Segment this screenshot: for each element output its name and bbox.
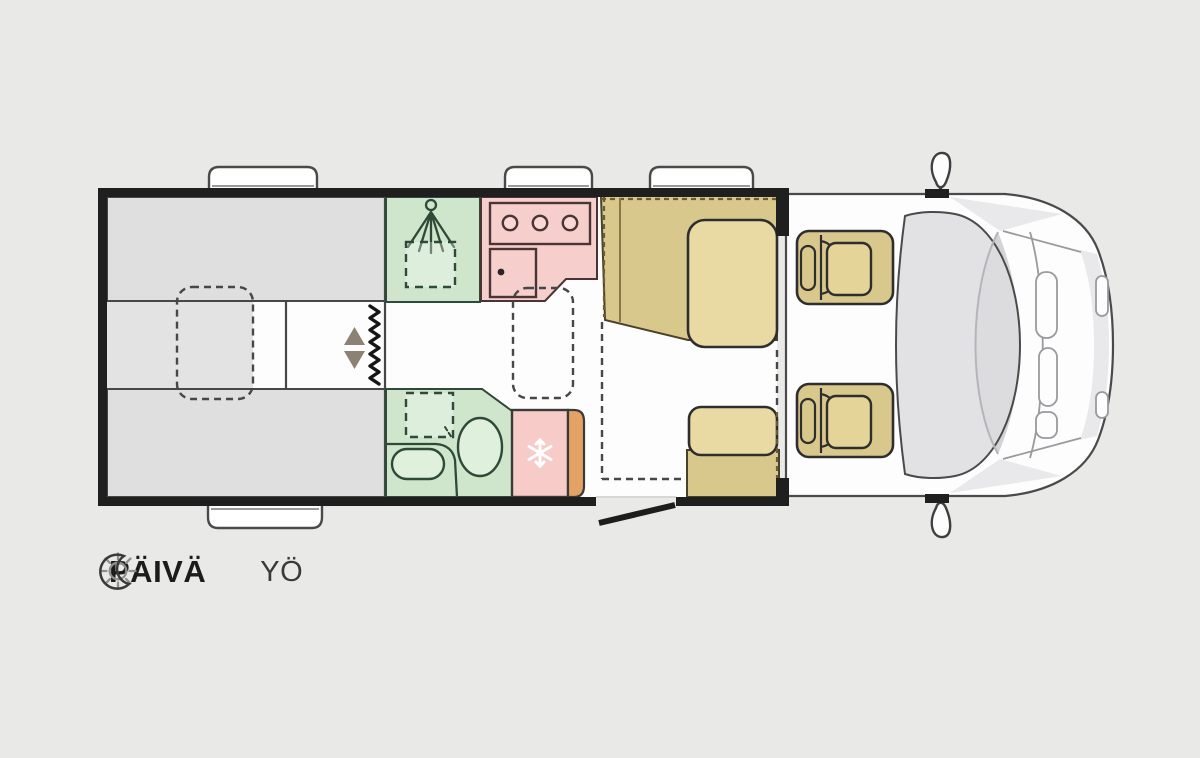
wall-left <box>98 188 107 506</box>
washroom <box>386 389 512 497</box>
grille-slots <box>1036 272 1057 438</box>
side-mirror-top <box>932 153 950 194</box>
dinette-bench <box>601 196 777 347</box>
wall-stub-bottom-right <box>776 478 789 506</box>
dinette-cushion <box>688 220 777 347</box>
b-pillar-top <box>925 189 949 198</box>
windshield <box>896 212 1020 478</box>
wall-bottom-right <box>676 497 789 506</box>
washroom-tray-dashed <box>406 393 453 437</box>
legend-night-label: YÖ <box>260 556 303 589</box>
wall-stub-top-right <box>776 188 789 236</box>
motorhome-floorplan: PÄIVÄ YÖ <box>0 0 1200 758</box>
floorplan-drawing <box>0 0 1200 758</box>
fridge <box>512 410 584 497</box>
rear-single-bed-bottom <box>107 389 385 497</box>
b-pillar-bottom <box>925 494 949 503</box>
between-beds-strip <box>107 301 253 389</box>
side-bench <box>687 407 779 497</box>
toilet-icon <box>458 418 502 476</box>
wall-bottom-left <box>98 497 596 506</box>
legend: PÄIVÄ YÖ <box>96 549 303 595</box>
wall-top <box>98 188 789 197</box>
cab-front-body <box>786 153 1113 537</box>
cab-seat-rear-facing-top <box>797 231 893 304</box>
washbasin-icon <box>392 449 444 479</box>
cab-seat-rear-facing-bottom <box>797 384 893 457</box>
rear-single-bed-top <box>107 197 385 301</box>
entry-door <box>596 497 676 523</box>
shower-tray-dashed <box>406 242 455 287</box>
shower-cubicle <box>386 197 480 302</box>
side-bench-cushion <box>689 407 777 455</box>
fridge-side-panel <box>568 410 584 497</box>
